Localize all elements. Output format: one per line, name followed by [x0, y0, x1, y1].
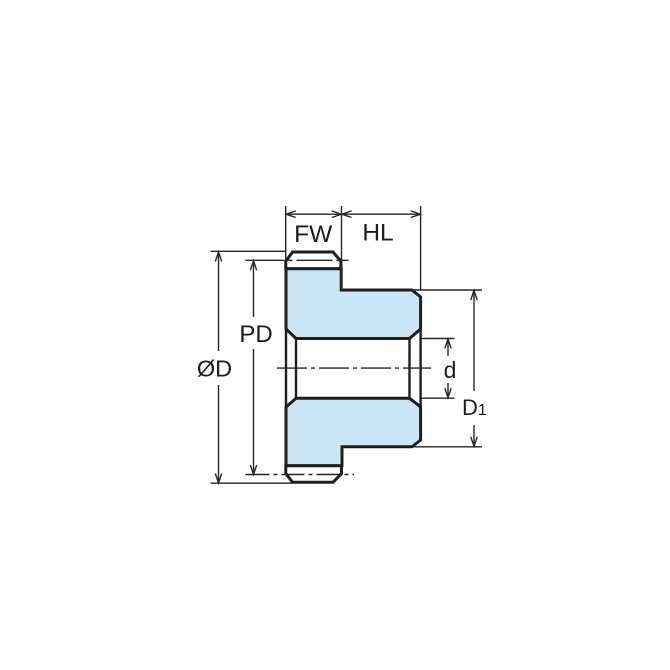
svg-text:ØD: ØD — [197, 356, 232, 382]
svg-text:d: d — [444, 357, 457, 383]
svg-text:HL: HL — [362, 220, 393, 247]
svg-text:PD: PD — [239, 321, 272, 348]
svg-text:FW: FW — [294, 221, 333, 248]
